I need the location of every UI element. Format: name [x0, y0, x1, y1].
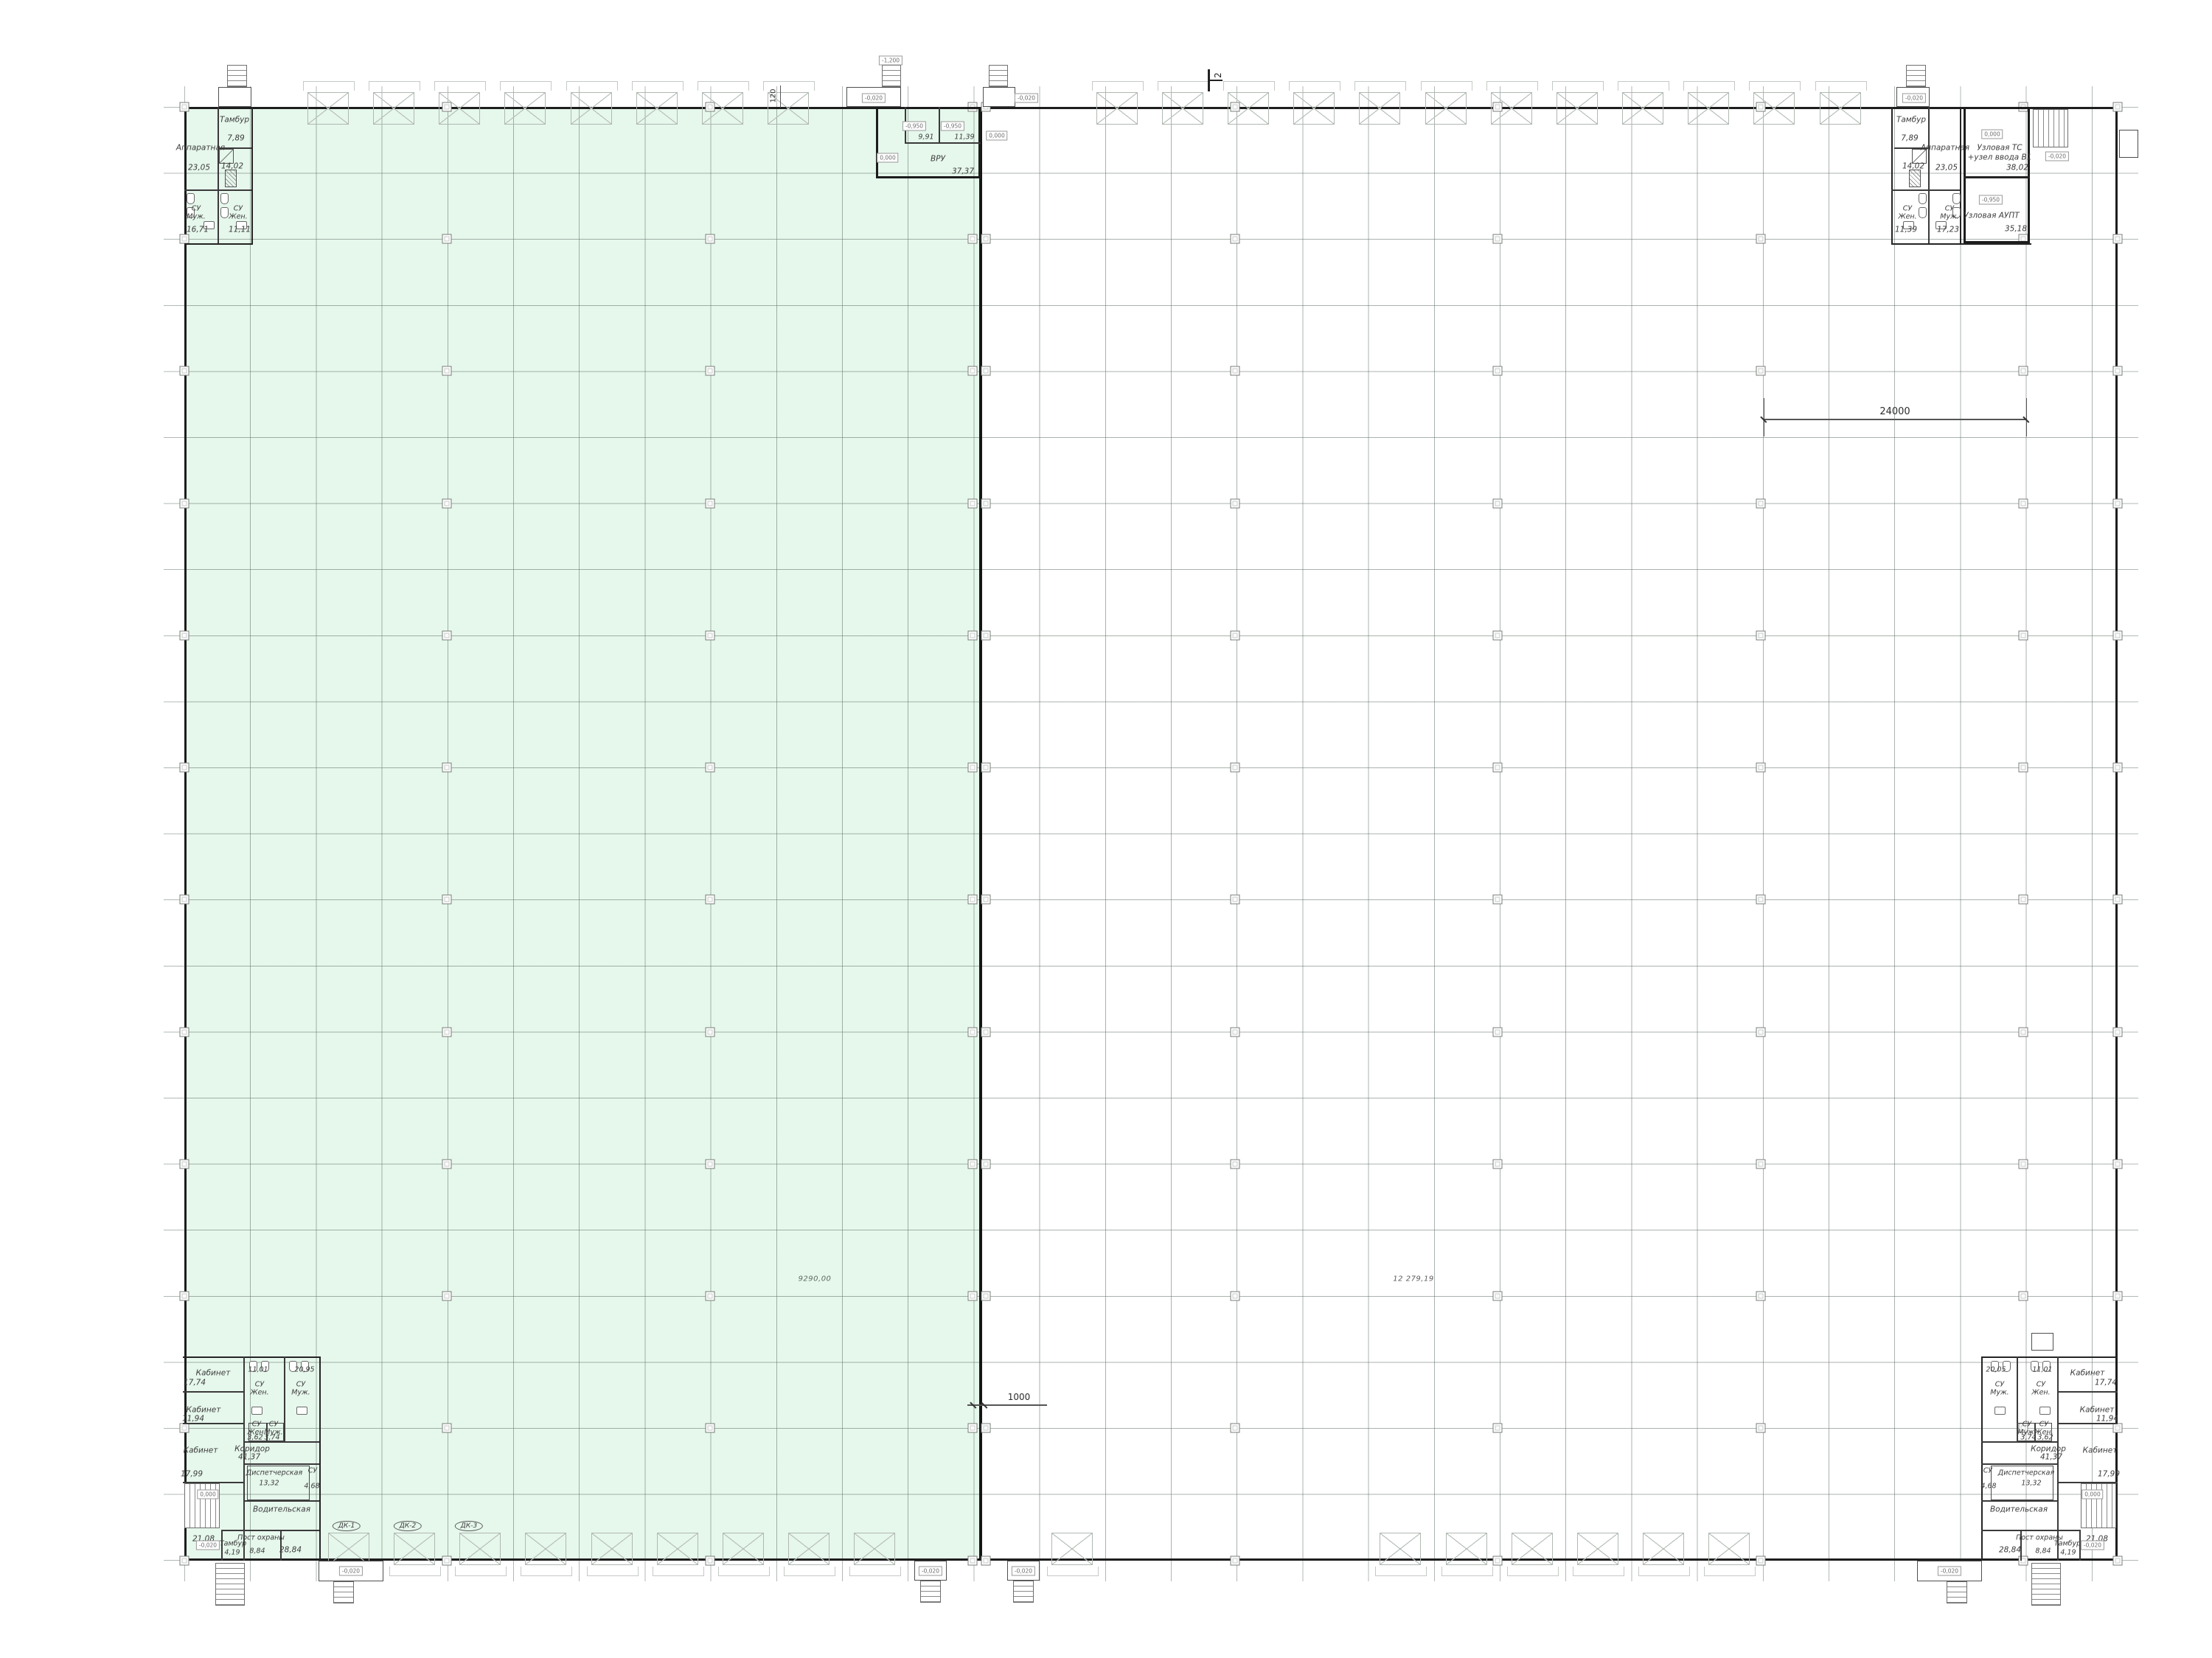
elevation-box: -0,020 [862, 94, 886, 103]
room-area: 17,99 [181, 1470, 203, 1480]
column-marker [981, 1292, 991, 1301]
dock-door [1096, 92, 1138, 125]
dock-door [307, 92, 349, 125]
column-marker [442, 1028, 452, 1037]
column-marker [706, 1556, 715, 1566]
dimension-120: 120 [770, 88, 778, 102]
column-marker [442, 763, 452, 773]
column-marker [180, 102, 189, 112]
dock-door [1577, 1533, 1618, 1565]
dock-door [1051, 1533, 1093, 1565]
room-label: Кабинет [2083, 1446, 2118, 1456]
room-area: 4,19 [224, 1548, 240, 1556]
dock-door [1359, 92, 1400, 125]
room-area: 23,05 [188, 164, 210, 173]
column-marker [706, 763, 715, 773]
column-marker [706, 1160, 715, 1169]
column-marker [1493, 1160, 1503, 1169]
elevation-box: -0,950 [941, 122, 964, 131]
column-marker [442, 1292, 452, 1301]
column-marker [180, 631, 189, 641]
room-label: СУ Муж. [1940, 205, 1958, 222]
room-area: 11,11 [229, 226, 251, 235]
column-marker [981, 234, 991, 244]
column-marker [706, 1292, 715, 1301]
column-marker [1231, 1028, 1240, 1037]
column-marker [2113, 895, 2123, 905]
dock-door [788, 1533, 829, 1565]
column-marker [180, 1028, 189, 1037]
column-marker [1231, 1292, 1240, 1301]
dock-door [571, 92, 612, 125]
column-marker [1493, 234, 1503, 244]
column-marker [1493, 895, 1503, 905]
dock-door [439, 92, 480, 125]
wall-appendage [2119, 130, 2138, 158]
room-label: Узловая АУПТ [1964, 212, 2019, 221]
room-label: Диспетчерская [246, 1469, 302, 1477]
column-marker [442, 895, 452, 905]
dock-door [1491, 92, 1532, 125]
dock-door [1425, 92, 1467, 125]
column-marker [1231, 234, 1240, 244]
column-marker [2019, 1292, 2028, 1301]
room-label: СУ [308, 1466, 317, 1474]
column-marker [981, 1556, 991, 1566]
room-area: 35,18 [2005, 225, 2027, 234]
room-area: 3,62 [247, 1433, 262, 1441]
column-marker [2113, 102, 2123, 112]
elevation-box: -0,020 [919, 1567, 942, 1576]
column-marker [2113, 366, 2123, 376]
column-marker [706, 366, 715, 376]
room-label: СУ Жен. [250, 1381, 268, 1398]
column-marker [968, 1424, 978, 1433]
column-marker [442, 1556, 452, 1566]
room-area: 13,32 [2021, 1479, 2041, 1487]
room-label: Диспетчерская [1998, 1469, 2054, 1477]
dock-door [591, 1533, 633, 1565]
elevation-box: -0,020 [1902, 94, 1926, 103]
column-marker [1493, 1292, 1503, 1301]
column-marker [1493, 499, 1503, 509]
exterior-stair [1013, 1581, 1034, 1603]
room-area: 4,68 [304, 1482, 319, 1490]
room-area: 11,94 [2096, 1415, 2118, 1424]
column-marker [2113, 1556, 2123, 1566]
entrance-porch [2031, 1333, 2053, 1351]
column-marker [1756, 1424, 1766, 1433]
column-marker [442, 631, 452, 641]
room-label: Кабинет [187, 1406, 221, 1415]
room-area: 3,62 [2037, 1433, 2053, 1441]
room-area: 17,74 [2095, 1379, 2117, 1388]
column-marker [968, 234, 978, 244]
column-marker [981, 499, 991, 509]
dock-door [636, 92, 678, 125]
dock-tag: ДК-3 [455, 1521, 483, 1531]
elevation-box: -0,020 [1015, 94, 1038, 103]
elevation-box: 0,000 [197, 1490, 218, 1499]
column-marker [180, 499, 189, 509]
column-marker [2019, 631, 2028, 641]
room-label: Тамбур [1896, 116, 1926, 125]
column-marker [2113, 499, 2123, 509]
column-marker [442, 1160, 452, 1169]
column-marker [1756, 1556, 1766, 1566]
column-marker [968, 763, 978, 773]
exterior-stair [2031, 1563, 2061, 1606]
column-marker [706, 631, 715, 641]
room-area: 41,37 [2040, 1453, 2062, 1463]
room-label: Аппаратная [176, 144, 225, 153]
zone-area-left: 9290,00 [799, 1275, 832, 1283]
dimension-text: 24000 [1879, 406, 1910, 417]
room-label: СУ Жен. [229, 205, 247, 222]
column-marker [1493, 366, 1503, 376]
elevation-box: -0,950 [1979, 195, 2003, 205]
dock-door [1708, 1533, 1750, 1565]
column-marker [981, 366, 991, 376]
room-area: 14,02 [1902, 162, 1924, 172]
room-area: 8,84 [2035, 1547, 2051, 1555]
elevation-box: -0,020 [2081, 1541, 2104, 1550]
room-area: 8,84 [249, 1547, 265, 1555]
column-marker [1231, 631, 1240, 641]
exterior-stair [1947, 1581, 1967, 1603]
room-area: 37,37 [952, 167, 974, 177]
column-marker [2113, 631, 2123, 641]
column-marker [706, 234, 715, 244]
exterior-stair [1906, 65, 1926, 87]
column-marker [2113, 1292, 2123, 1301]
column-marker [968, 1028, 978, 1037]
room-area: 4,19 [2060, 1548, 2076, 1556]
room-area: 11,01 [2032, 1365, 2052, 1373]
entrance-porch [983, 87, 1015, 107]
room-area: 28,84 [279, 1546, 302, 1556]
room-label: Водительская [1990, 1505, 2048, 1515]
column-marker [180, 1292, 189, 1301]
column-marker [2113, 1160, 2123, 1169]
column-marker [981, 895, 991, 905]
column-marker [180, 1160, 189, 1169]
room-label: Кабинет [184, 1446, 218, 1456]
room-area: 38,02 [2006, 164, 2028, 173]
room-area: 17,74 [184, 1379, 206, 1388]
column-marker [2113, 1424, 2123, 1433]
column-marker [2113, 763, 2123, 773]
column-marker [180, 895, 189, 905]
column-marker [442, 366, 452, 376]
column-marker [180, 763, 189, 773]
column-marker [1231, 499, 1240, 509]
column-marker [180, 366, 189, 376]
room-area: 28,84 [1999, 1546, 2021, 1556]
room-area: 11,94 [182, 1415, 204, 1424]
column-marker [968, 1556, 978, 1566]
room-area: 11,39 [1895, 226, 1917, 235]
column-marker [1493, 763, 1503, 773]
dock-door [1380, 1533, 1421, 1565]
room-label: ВРУ [931, 155, 945, 164]
room-label: Кабинет [196, 1369, 231, 1379]
column-marker [1231, 366, 1240, 376]
room-label: Кабинет [2070, 1369, 2105, 1379]
room-area: 7,89 [1901, 134, 1918, 144]
exterior-stair [882, 65, 901, 87]
column-marker [968, 1160, 978, 1169]
column-marker [2019, 1160, 2028, 1169]
elevation-box: -1,200 [879, 56, 902, 66]
column-marker [968, 1292, 978, 1301]
room-label: СУ Жен. [2031, 1381, 2050, 1398]
dock-door [1512, 1533, 1553, 1565]
dock-door [525, 1533, 566, 1565]
dock-door [1688, 92, 1729, 125]
column-marker [1231, 1424, 1240, 1433]
column-marker [1756, 499, 1766, 509]
column-marker [1756, 763, 1766, 773]
floor-plan-drawing: Тамбур 7,89 Аппаратная 23,05 14,02 СУ Му… [0, 0, 2212, 1658]
room-label: СУ Муж. [187, 205, 205, 222]
section-label: 2 [1213, 72, 1223, 78]
room-label: СУ [1983, 1466, 1992, 1474]
column-marker [2113, 1028, 2123, 1037]
dock-door [1228, 92, 1269, 125]
column-marker [706, 895, 715, 905]
column-marker [442, 499, 452, 509]
column-marker [968, 631, 978, 641]
room-label: Узловая ТС +узел ввода В1 [1968, 143, 2032, 161]
room-label: Тамбур [220, 116, 249, 125]
dock-door [504, 92, 546, 125]
column-marker [1756, 1160, 1766, 1169]
column-marker [442, 234, 452, 244]
column-marker [968, 499, 978, 509]
column-marker [2019, 1028, 2028, 1037]
column-marker [981, 1028, 991, 1037]
column-marker [968, 895, 978, 905]
exterior-stair [989, 65, 1008, 87]
room-area: 13,32 [259, 1479, 279, 1487]
column-marker [2113, 234, 2123, 244]
room-label: Кабинет [2080, 1406, 2115, 1415]
dock-door [1293, 92, 1335, 125]
room-area: 4,68 [1980, 1482, 1996, 1490]
room-area: 41,37 [238, 1453, 260, 1463]
column-marker [2019, 763, 2028, 773]
dock-door [373, 92, 414, 125]
dock-door [1753, 92, 1795, 125]
column-marker [1231, 1556, 1240, 1566]
column-marker [1756, 631, 1766, 641]
column-marker [1231, 1160, 1240, 1169]
column-marker [1231, 895, 1240, 905]
grid-ticks-right [2118, 107, 2138, 1561]
column-marker [1756, 1028, 1766, 1037]
elevation-box: 0,000 [2081, 1490, 2103, 1499]
elevation-box: 0,000 [877, 153, 898, 163]
column-marker [1493, 1424, 1503, 1433]
column-marker [2019, 366, 2028, 376]
firewall [979, 107, 982, 1561]
elevation-box: 0,000 [1981, 130, 2003, 139]
elevation-box: -0,950 [902, 122, 926, 131]
mop-sink [225, 170, 237, 187]
column-marker [1756, 366, 1766, 376]
dimension-text: 1000 [1008, 1392, 1031, 1402]
building-outline [184, 107, 2118, 1561]
room-area: 20,05 [1986, 1365, 2006, 1373]
column-marker [1756, 234, 1766, 244]
dock-door [1446, 1533, 1487, 1565]
column-marker [1231, 763, 1240, 773]
dock-door [459, 1533, 501, 1565]
dock-door [723, 1533, 764, 1565]
room-area: 9,91 [918, 133, 933, 141]
column-marker [1493, 1028, 1503, 1037]
room-area: 7,89 [227, 134, 244, 144]
column-marker [1493, 1556, 1503, 1566]
room-label: Тамбур [2054, 1539, 2081, 1547]
entrance-porch [218, 87, 251, 107]
zone-area-right: 12 279,19 [1393, 1275, 1433, 1283]
elevation-box: 0,000 [986, 131, 1007, 141]
exterior-stair [920, 1581, 941, 1603]
dock-door [394, 1533, 435, 1565]
column-marker [1756, 1292, 1766, 1301]
column-marker [1756, 895, 1766, 905]
elevation-box: -0,020 [339, 1567, 363, 1576]
column-marker [2019, 499, 2028, 509]
room-label: Водительская [253, 1505, 310, 1515]
column-marker [706, 1028, 715, 1037]
column-marker [981, 763, 991, 773]
dock-door [854, 1533, 895, 1565]
column-marker [180, 234, 189, 244]
room-area: 17,23 [1937, 226, 1959, 235]
column-marker [180, 1556, 189, 1566]
column-marker [706, 499, 715, 509]
room-label: Аппаратная [1921, 144, 1969, 153]
column-marker [981, 631, 991, 641]
dock-door [702, 92, 743, 125]
column-marker [180, 1424, 189, 1433]
column-marker [442, 1424, 452, 1433]
dock-door [1820, 92, 1861, 125]
room-label: СУ Муж. [1990, 1381, 2008, 1398]
column-marker [981, 1424, 991, 1433]
room-area: 11,39 [954, 133, 974, 141]
room-label: СУ Муж. [291, 1381, 310, 1398]
dock-tag: ДК-1 [333, 1521, 361, 1531]
elevation-box: -0,020 [1012, 1567, 1035, 1576]
room-area: 11,01 [248, 1365, 268, 1373]
column-marker [1493, 631, 1503, 641]
room-area: 23,05 [1935, 164, 1958, 173]
column-marker [968, 366, 978, 376]
room-label: СУ Жен. [1898, 205, 1916, 222]
column-marker [981, 1160, 991, 1169]
room-area: 17,99 [2098, 1470, 2120, 1480]
room-label: Тамбур [220, 1539, 246, 1547]
dock-door [1622, 92, 1663, 125]
dock-door [1162, 92, 1203, 125]
exterior-stair [333, 1581, 354, 1603]
interior-stair [2033, 109, 2068, 147]
room-area: 3,74 [264, 1433, 279, 1441]
elevation-box: -0,020 [1938, 1567, 1961, 1576]
dock-tag: ДК-2 [394, 1521, 422, 1531]
elevation-box: -0,020 [2045, 152, 2069, 161]
room-area: 20,95 [294, 1365, 314, 1373]
dock-door [1643, 1533, 1684, 1565]
elevation-box: -0,020 [196, 1541, 220, 1550]
room-area: 16,71 [187, 226, 209, 235]
mop-sink [1909, 170, 1921, 187]
dock-door [657, 1533, 698, 1565]
exterior-stair [215, 1563, 245, 1606]
column-marker [2019, 895, 2028, 905]
dock-door [1557, 92, 1598, 125]
column-marker [706, 1424, 715, 1433]
exterior-stair [227, 65, 247, 87]
room-area: 14,02 [221, 162, 243, 172]
grid-ticks-left [164, 107, 184, 1561]
